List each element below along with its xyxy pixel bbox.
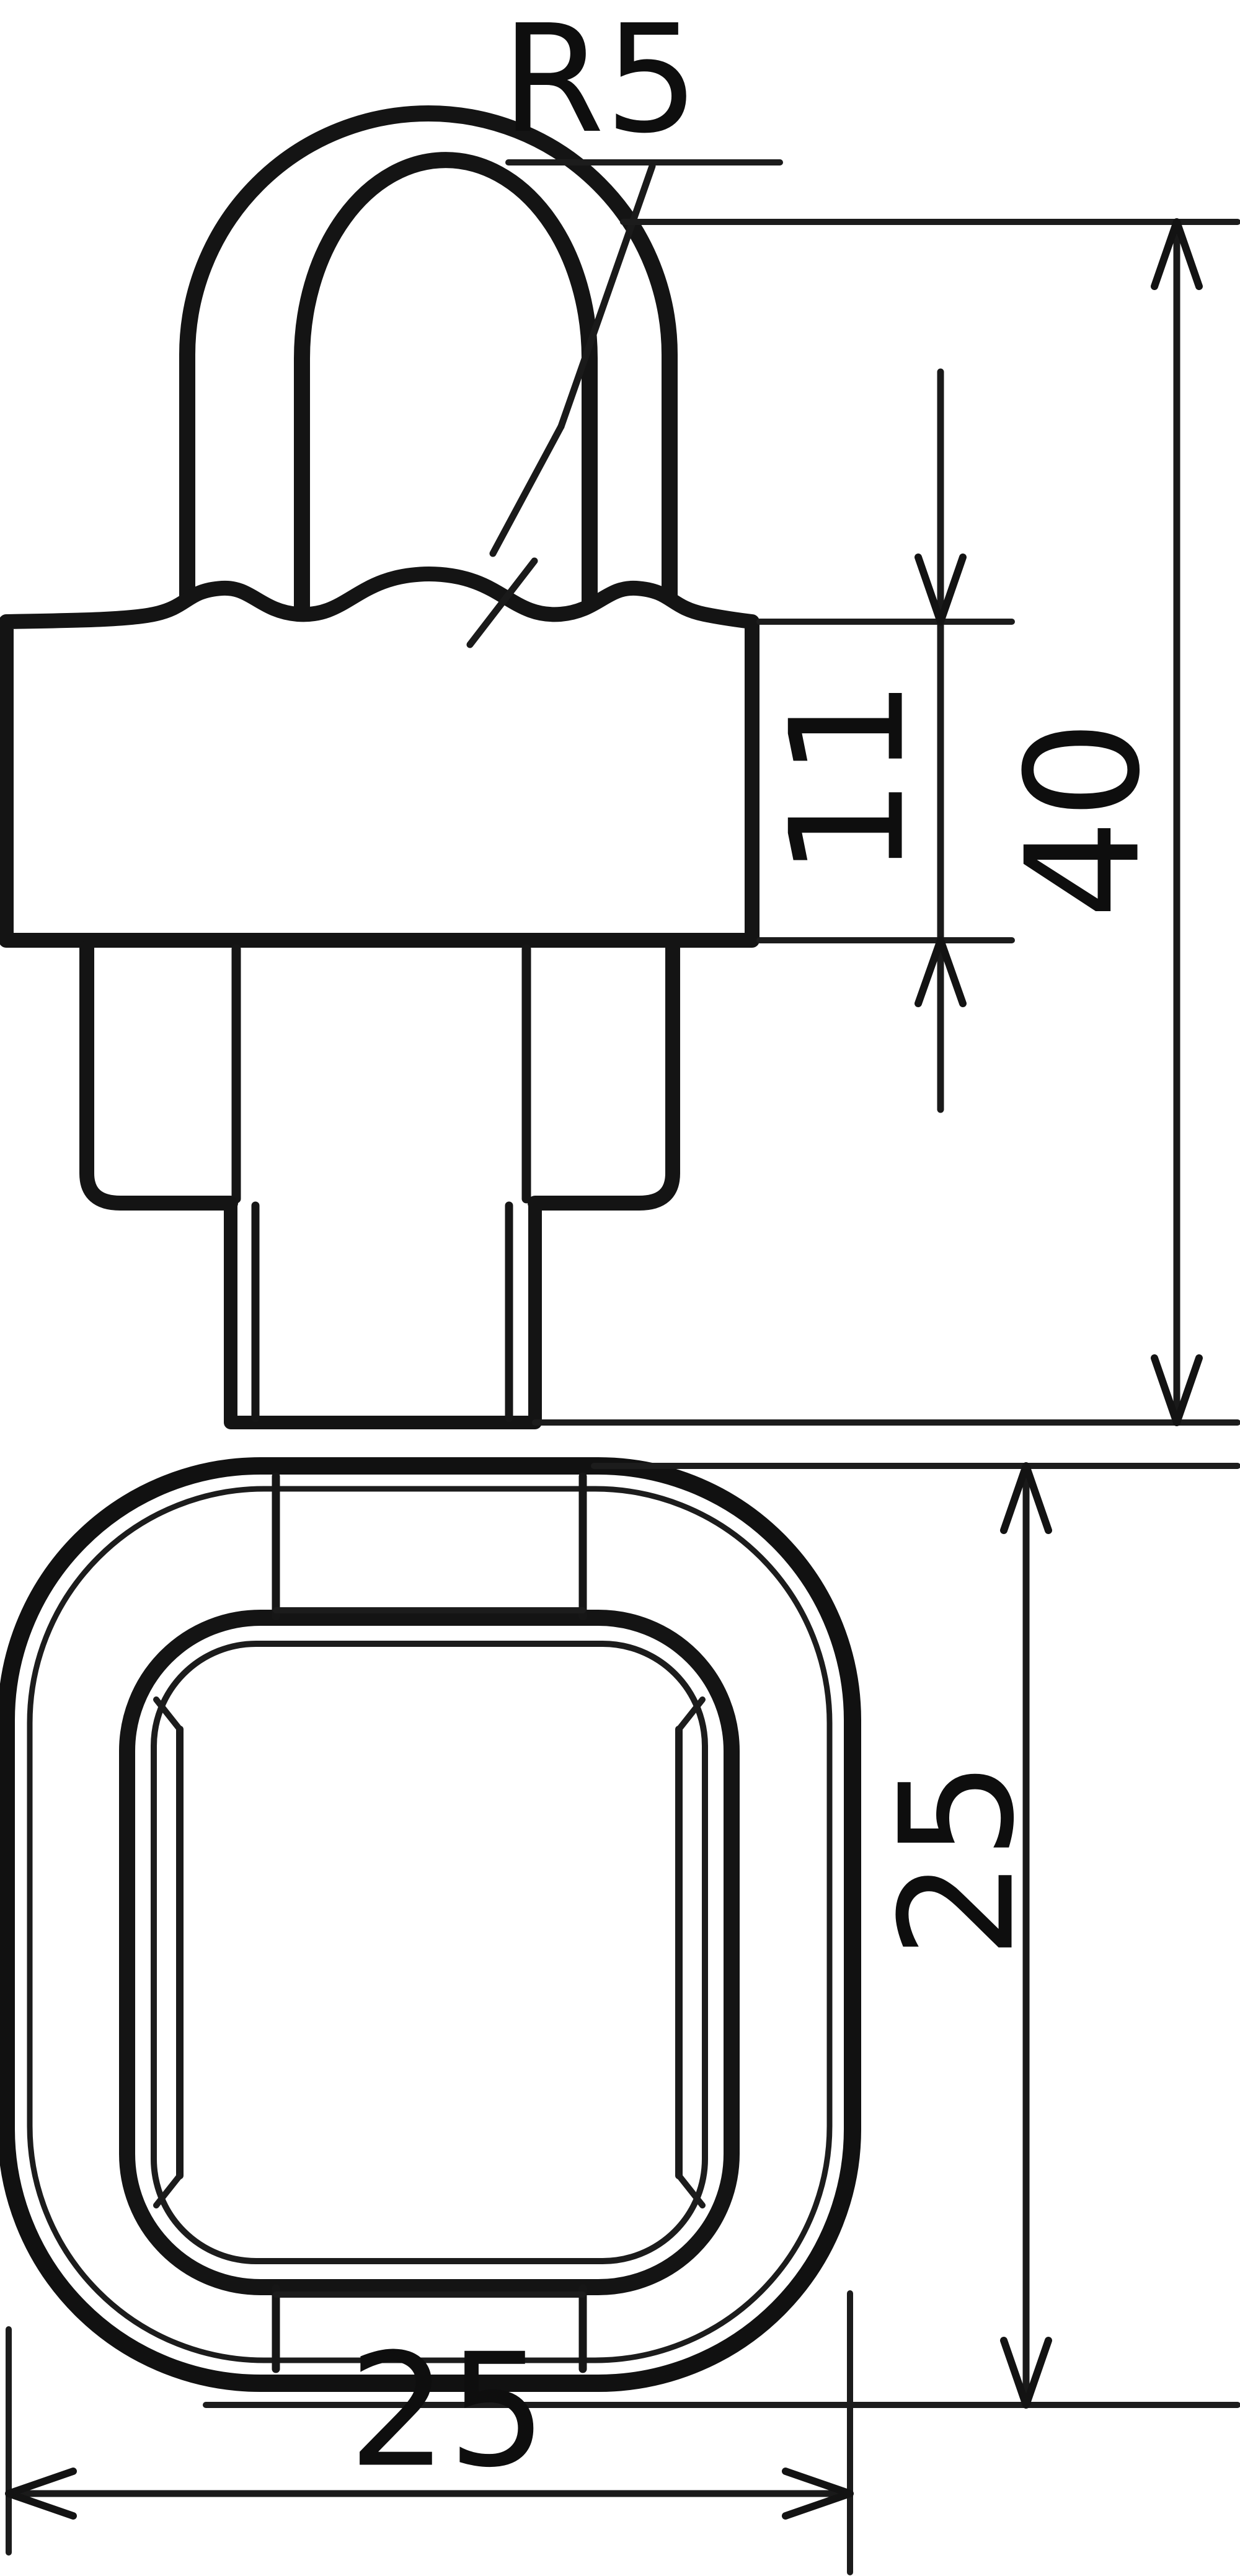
dim-11-label: 11 [758,679,939,878]
dim-40-label: 40 [993,720,1175,919]
clamp-frame-outline [127,1618,732,2287]
top-view: 25 25 [6,1466,1238,2572]
hex-nut-outline [87,948,673,1203]
side-view: R5 11 40 [6,0,1238,1423]
drawing-sheet: R5 11 40 [0,0,1240,2576]
dim-25h-label: 25 [348,2321,547,2502]
dim-r5-label: R5 [501,0,699,166]
dim-r5-leader-barb-1 [493,426,561,554]
technical-drawing-svg: R5 11 40 [0,0,1240,2576]
conductor-opening-outline [154,1644,705,2261]
stirrup-inner-outline [302,160,590,611]
threaded-stud-outline [231,1203,535,1423]
dim-25v-label: 25 [867,1760,1049,1959]
clamp-body-outline [6,574,752,940]
